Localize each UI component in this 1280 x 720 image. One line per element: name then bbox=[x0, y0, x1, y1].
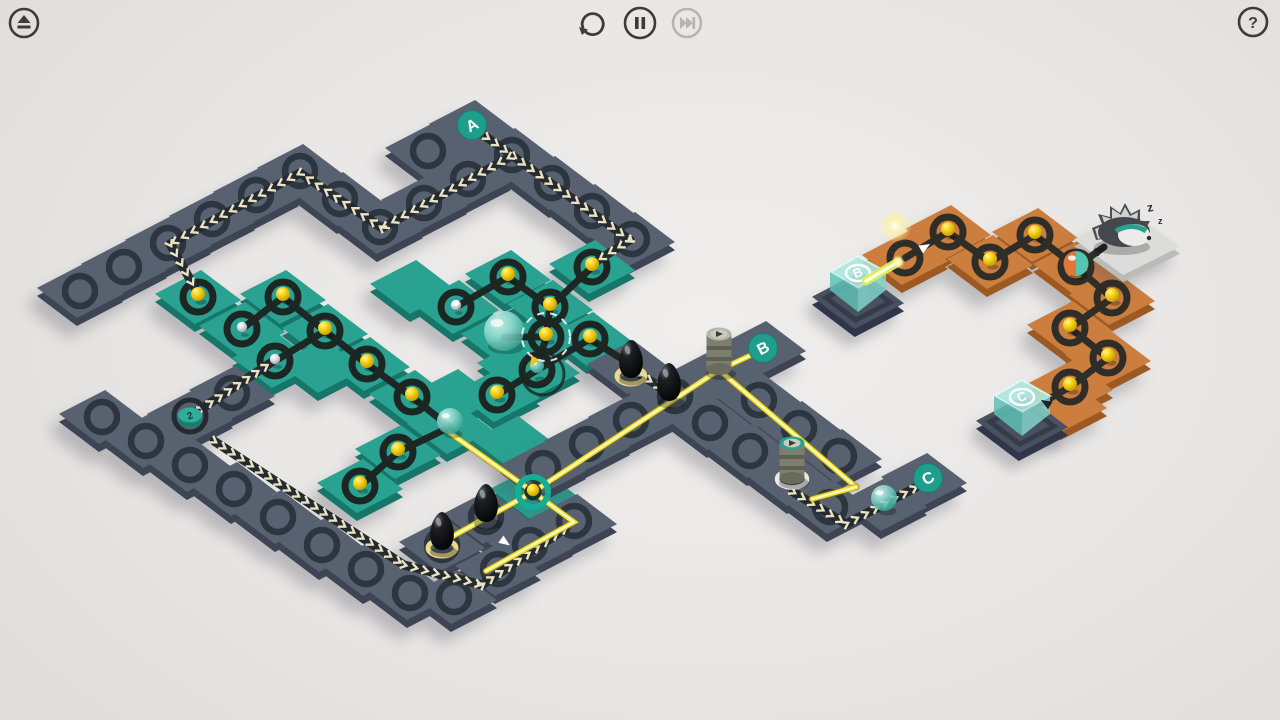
game-stage: BCABC2zz? bbox=[0, 0, 1280, 720]
ball[interactable] bbox=[501, 267, 515, 281]
post-band bbox=[707, 357, 732, 361]
ball[interactable] bbox=[983, 252, 997, 266]
ball[interactable] bbox=[391, 442, 405, 456]
ball[interactable] bbox=[405, 387, 419, 401]
eject-button[interactable] bbox=[8, 7, 40, 39]
ball[interactable] bbox=[1105, 288, 1119, 302]
undo-button[interactable] bbox=[575, 7, 607, 39]
hedgehog-nose bbox=[1147, 236, 1151, 240]
ball[interactable] bbox=[585, 257, 599, 271]
glass-dome[interactable] bbox=[484, 311, 524, 354]
zzz-text: z bbox=[1146, 200, 1155, 215]
skip-button[interactable] bbox=[671, 7, 703, 39]
ball[interactable] bbox=[360, 354, 374, 368]
puzzle-scene: BCABC2zz? bbox=[0, 0, 1280, 720]
light-glow-icon bbox=[878, 209, 912, 243]
ball[interactable] bbox=[1063, 318, 1077, 332]
ball[interactable] bbox=[353, 476, 367, 490]
ball-shadow bbox=[241, 333, 249, 337]
ball-shadow bbox=[274, 365, 282, 369]
ball[interactable] bbox=[490, 385, 504, 399]
specular bbox=[875, 490, 883, 495]
post-foot bbox=[780, 472, 805, 484]
ball[interactable] bbox=[270, 354, 280, 364]
goal-badge-A: A bbox=[458, 111, 487, 140]
help-button[interactable] bbox=[1237, 6, 1269, 38]
specular bbox=[1068, 255, 1076, 260]
post-band bbox=[780, 466, 805, 470]
zzz-text: z bbox=[1158, 216, 1163, 226]
sparkle-icon bbox=[453, 300, 459, 306]
ball[interactable] bbox=[318, 321, 332, 335]
post-foot bbox=[707, 363, 732, 375]
goal-badge-B: B bbox=[749, 334, 778, 363]
post-band bbox=[707, 346, 732, 350]
post-band bbox=[780, 455, 805, 459]
ball-shadow bbox=[455, 311, 463, 315]
ball[interactable] bbox=[1063, 377, 1077, 391]
ball[interactable] bbox=[237, 322, 247, 332]
specular bbox=[441, 413, 449, 418]
ball[interactable] bbox=[1101, 348, 1115, 362]
beam-glow bbox=[891, 255, 905, 269]
ball[interactable] bbox=[527, 484, 539, 496]
ball[interactable] bbox=[941, 222, 955, 236]
post[interactable] bbox=[777, 437, 809, 490]
goal-badge-C: C bbox=[914, 464, 943, 493]
ball[interactable] bbox=[539, 327, 553, 341]
pause-button[interactable] bbox=[624, 7, 656, 39]
ball[interactable] bbox=[437, 408, 463, 434]
ball[interactable] bbox=[871, 485, 897, 511]
ball[interactable] bbox=[543, 297, 557, 311]
ball-shadow bbox=[535, 377, 545, 382]
post[interactable] bbox=[706, 328, 736, 381]
ball[interactable] bbox=[583, 329, 597, 343]
specular bbox=[491, 319, 504, 327]
ball[interactable] bbox=[1028, 225, 1042, 239]
dome[interactable] bbox=[484, 311, 524, 351]
ball[interactable] bbox=[191, 287, 205, 301]
ball[interactable] bbox=[276, 287, 290, 301]
